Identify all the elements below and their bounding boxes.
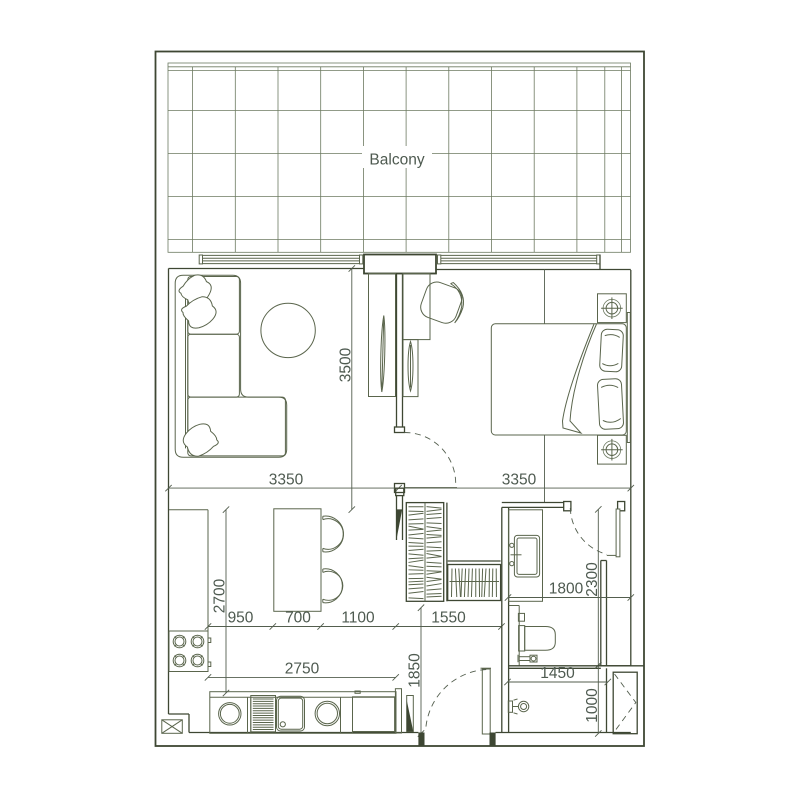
svg-text:Balcony: Balcony (369, 152, 424, 169)
svg-text:2300: 2300 (584, 562, 601, 597)
svg-text:1550: 1550 (431, 610, 466, 627)
svg-text:950: 950 (228, 610, 254, 627)
svg-text:1850: 1850 (407, 653, 424, 688)
svg-text:2700: 2700 (212, 578, 229, 613)
svg-text:1100: 1100 (341, 610, 375, 627)
svg-text:3500: 3500 (337, 347, 354, 382)
svg-text:700: 700 (285, 610, 311, 627)
svg-text:2750: 2750 (285, 660, 320, 677)
svg-text:1450: 1450 (540, 665, 575, 682)
svg-text:3350: 3350 (502, 471, 537, 488)
svg-text:3350: 3350 (269, 471, 304, 488)
svg-text:1800: 1800 (549, 581, 584, 598)
svg-text:1000: 1000 (584, 688, 601, 723)
